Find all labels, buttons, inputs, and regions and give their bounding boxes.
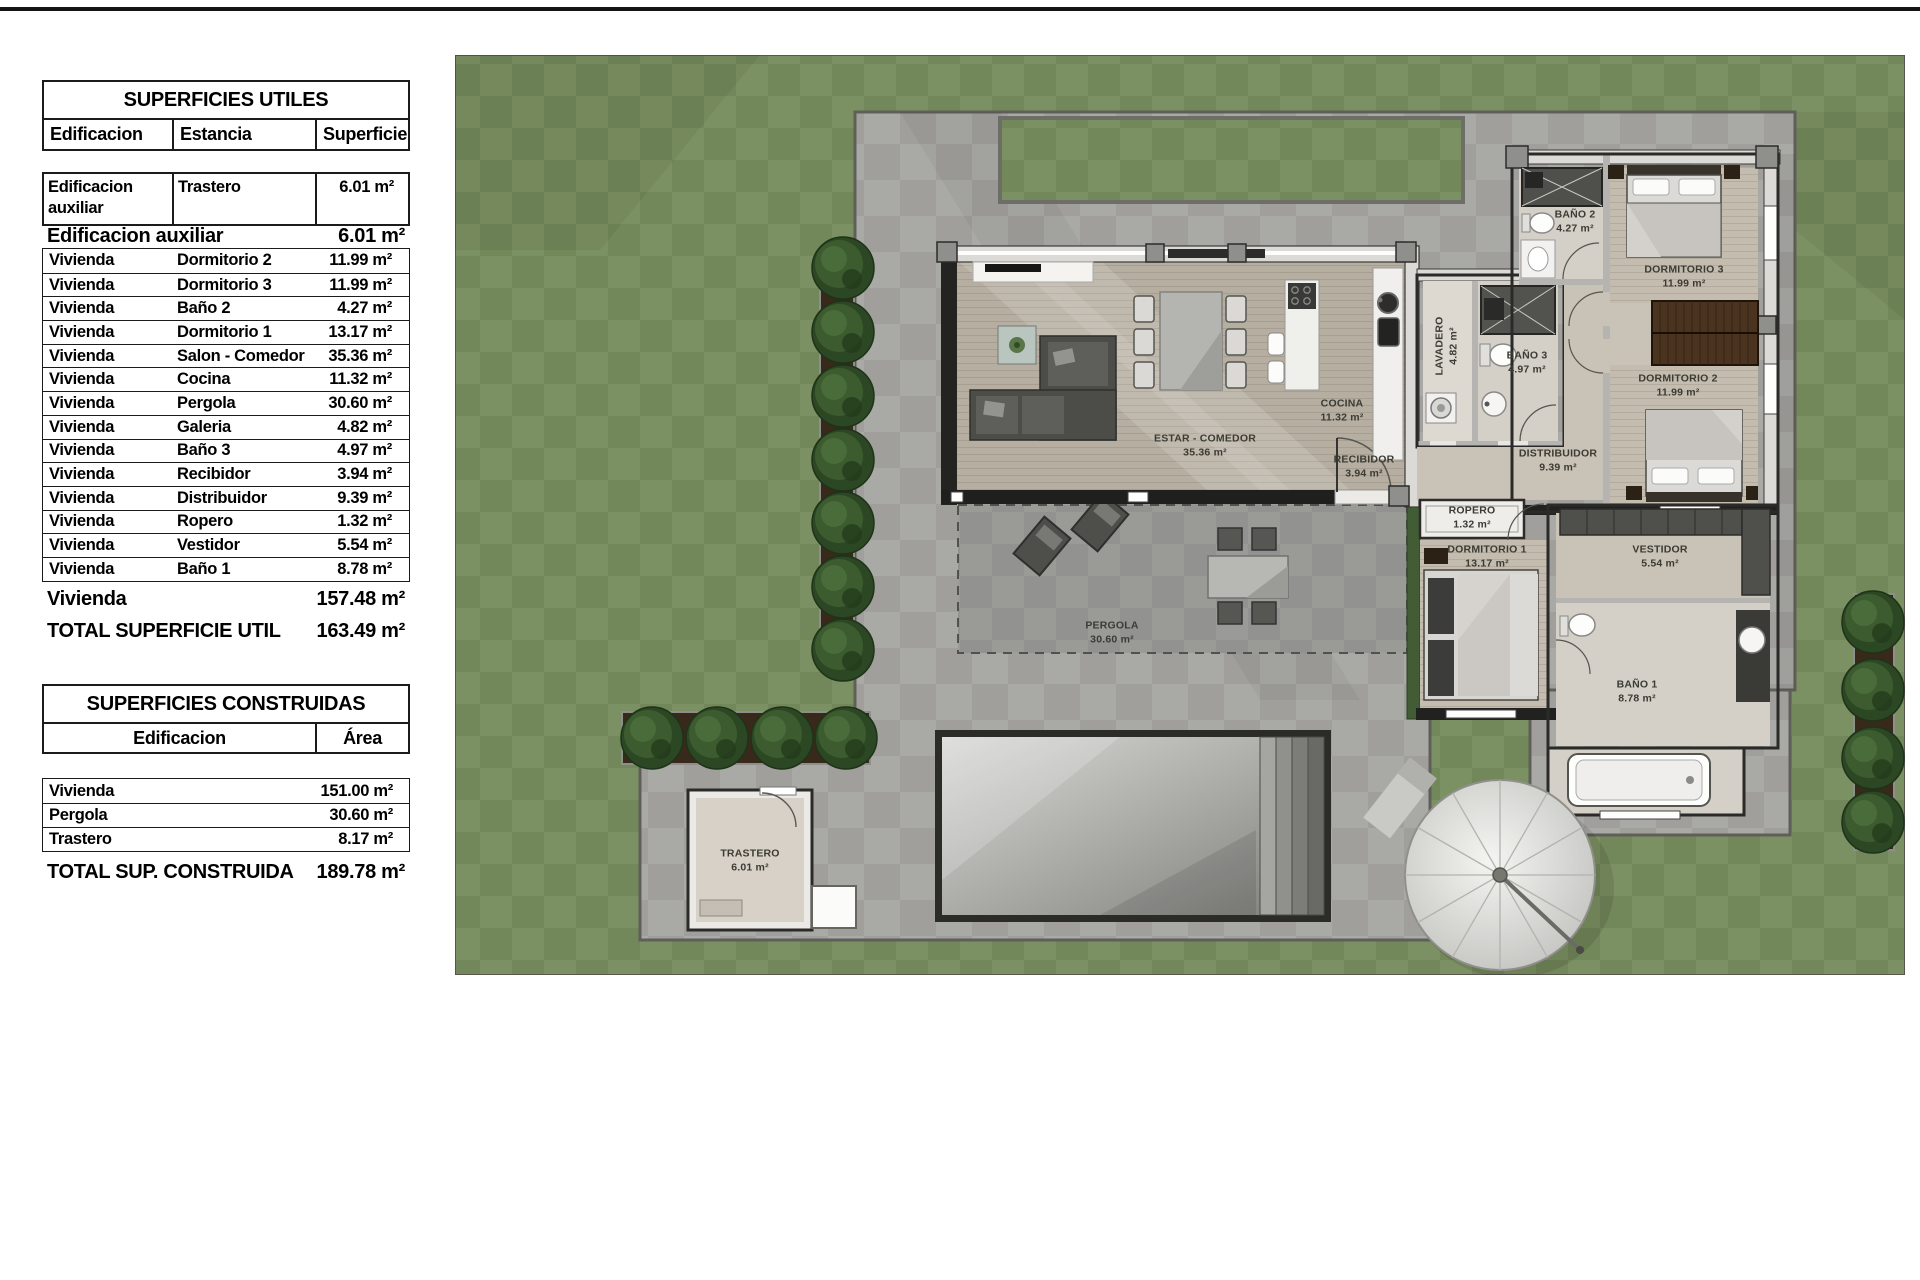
table-cell: Cocina: [171, 370, 314, 389]
washing-machine: [1426, 393, 1456, 423]
aux-summary-label: Edificacion auxiliar: [42, 225, 223, 248]
total-construida: TOTAL SUP. CONSTRUIDA 189.78 m²: [42, 858, 410, 886]
table-cell: 11.99 m²: [314, 251, 409, 270]
col-edificacion: Edificacion: [44, 120, 172, 149]
col-area: Área: [315, 724, 408, 752]
table-cell: Vivienda: [43, 370, 171, 389]
table-row: ViviendaDormitorio 113.17 m²: [43, 320, 409, 344]
table-construidas-rows: Vivienda151.00 m²Pergola30.60 m²Trastero…: [42, 778, 410, 852]
table-cell: 11.99 m²: [314, 276, 409, 295]
table-cell: Galeria: [171, 418, 314, 437]
table-cell: Dormitorio 3: [171, 276, 314, 295]
table-row: Trastero8.17 m²: [43, 827, 409, 851]
table-row: ViviendaBaño 24.27 m²: [43, 296, 409, 320]
tv: [985, 264, 1041, 272]
total-util: TOTAL SUPERFICIE UTIL 163.49 m²: [42, 617, 410, 645]
table-cell: 4.82 m²: [314, 418, 409, 437]
total-util-value: 163.49 m²: [317, 620, 410, 643]
wardrobe: [1652, 301, 1758, 365]
table-cell: 8.78 m²: [314, 560, 409, 579]
table-cell: Dormitorio 2: [171, 251, 314, 270]
table-cell: Vivienda: [43, 276, 171, 295]
table-utiles-rows: ViviendaDormitorio 211.99 m²ViviendaDorm…: [42, 248, 410, 582]
table-row: ViviendaGaleria4.82 m²: [43, 415, 409, 439]
table-cell: Vivienda: [43, 560, 171, 579]
table-cell: 3.94 m²: [314, 465, 409, 484]
hedge: [1407, 503, 1420, 719]
sink-bano1: [1739, 627, 1765, 653]
site-plan: ESTAR - COMEDOR35.36 m²COCINA11.32 m²REC…: [455, 55, 1905, 975]
table-cell: Vivienda: [43, 323, 171, 342]
top-rule: [0, 7, 1920, 11]
vivienda-summary-label: Vivienda: [42, 588, 127, 611]
bathtub: [1568, 754, 1710, 806]
shower-bano3: [1481, 286, 1555, 334]
table-cell: Vivienda: [43, 251, 171, 270]
table-cell: 1.32 m²: [314, 512, 409, 531]
table-row: Pergola30.60 m²: [43, 803, 409, 827]
table-row: ViviendaDormitorio 211.99 m²: [43, 249, 409, 273]
table-cell: Vivienda: [43, 394, 171, 413]
table-cell: Recibidor: [171, 465, 314, 484]
table-cell: 4.27 m²: [314, 299, 409, 318]
table-cell: 4.97 m²: [314, 441, 409, 460]
table-row: ViviendaVestidor5.54 m²: [43, 533, 409, 557]
table-construidas-title: SUPERFICIES CONSTRUIDAS: [44, 686, 408, 724]
table-cell: Vivienda: [43, 465, 171, 484]
toilet-tank: [1480, 344, 1490, 366]
table-cell: Trastero: [43, 830, 314, 849]
table-row: ViviendaBaño 18.78 m²: [43, 557, 409, 581]
table-construidas-header: SUPERFICIES CONSTRUIDAS Edificacion Área: [42, 684, 410, 754]
table-cell: Distribuidor: [171, 489, 314, 508]
total-construida-label: TOTAL SUP. CONSTRUIDA: [42, 861, 294, 884]
table-row: ViviendaCocina11.32 m²: [43, 367, 409, 391]
table-cell: Vivienda: [43, 299, 171, 318]
aux-row-box: Edificacion auxiliar Trastero 6.01 m²: [42, 172, 410, 226]
table-utiles-title: SUPERFICIES UTILES: [44, 82, 408, 120]
vestidor-bano1-block: [1548, 505, 1778, 819]
bed-dormitorio2: [1626, 410, 1758, 502]
table-cell: 8.17 m²: [314, 830, 409, 849]
table-cell: 30.60 m²: [314, 806, 409, 825]
table-row: Edificacion auxiliar Trastero 6.01 m²: [44, 174, 408, 224]
toilet-bano2: [1530, 213, 1554, 233]
table-utiles-header: SUPERFICIES UTILES Edificacion Estancia …: [42, 80, 410, 151]
bed-dormitorio3: [1608, 165, 1740, 257]
aux-superficie: 6.01 m²: [315, 174, 408, 224]
table-cell: 5.54 m²: [314, 536, 409, 555]
col-edificacion-2: Edificacion: [44, 724, 315, 752]
total-util-label: TOTAL SUPERFICIE UTIL: [42, 620, 281, 643]
floorplan-sheet: { "page": {"top_rule_color": "#141414", …: [0, 0, 1920, 1280]
table-cell: Vivienda: [43, 536, 171, 555]
table-row: ViviendaSalon - Comedor35.36 m²: [43, 344, 409, 368]
shower-bano2: [1522, 168, 1602, 206]
table-row: ViviendaRopero1.32 m²: [43, 510, 409, 534]
col-superficie: Superficie: [315, 120, 408, 149]
table-cell: Vivienda: [43, 347, 171, 366]
total-construida-value: 189.78 m²: [317, 861, 410, 884]
table-cell: Vivienda: [43, 782, 314, 801]
aux-summary: Edificacion auxiliar 6.01 m²: [42, 223, 410, 249]
table-cell: Baño 3: [171, 441, 314, 460]
side-table: [998, 326, 1036, 364]
table-utiles-columns: Edificacion Estancia Superficie: [44, 120, 408, 149]
col-estancia: Estancia: [172, 120, 315, 149]
floor-plan-svg: [455, 55, 1905, 975]
vivienda-summary-value: 157.48 m²: [317, 588, 410, 611]
vivienda-summary: Vivienda 157.48 m²: [42, 586, 410, 612]
table-cell: Vestidor: [171, 536, 314, 555]
table-row: ViviendaDormitorio 311.99 m²: [43, 273, 409, 297]
table-cell: 35.36 m²: [314, 347, 409, 366]
table-cell: Dormitorio 1: [171, 323, 314, 342]
dining-set: [1134, 292, 1246, 390]
table-cell: Ropero: [171, 512, 314, 531]
bed-dormitorio1: [1424, 548, 1538, 700]
table-cell: Vivienda: [43, 441, 171, 460]
living-wing: [937, 242, 1419, 507]
table-cell: Salon - Comedor: [171, 347, 314, 366]
service-block: [1417, 269, 1564, 447]
table-row: ViviendaBaño 34.97 m²: [43, 439, 409, 463]
kitchen-counter: [1373, 268, 1403, 460]
table-row: ViviendaRecibidor3.94 m²: [43, 462, 409, 486]
table-cell: Baño 1: [171, 560, 314, 579]
table-cell: Pergola: [171, 394, 314, 413]
table-construidas-columns: Edificacion Área: [44, 724, 408, 752]
table-cell: Vivienda: [43, 489, 171, 508]
table-cell: 30.60 m²: [314, 394, 409, 413]
pool: [935, 730, 1331, 922]
counter-bano1: [1736, 610, 1770, 702]
table-row: ViviendaDistribuidor9.39 m²: [43, 486, 409, 510]
table-cell: Vivienda: [43, 418, 171, 437]
table-cell: 13.17 m²: [314, 323, 409, 342]
table-row: Vivienda151.00 m²: [43, 779, 409, 803]
table-cell: Vivienda: [43, 512, 171, 531]
table-row: ViviendaPergola30.60 m²: [43, 391, 409, 415]
lawn-patch: [1000, 118, 1463, 202]
toilet-bano1: [1569, 614, 1595, 636]
table-cell: 151.00 m²: [314, 782, 409, 801]
table-cell: Pergola: [43, 806, 314, 825]
aux-edificacion: Edificacion auxiliar: [44, 174, 172, 224]
table-cell: 11.32 m²: [314, 370, 409, 389]
table-cell: 9.39 m²: [314, 489, 409, 508]
aux-summary-value: 6.01 m²: [338, 225, 410, 248]
table-cell: Baño 2: [171, 299, 314, 318]
aux-estancia: Trastero: [172, 174, 315, 224]
